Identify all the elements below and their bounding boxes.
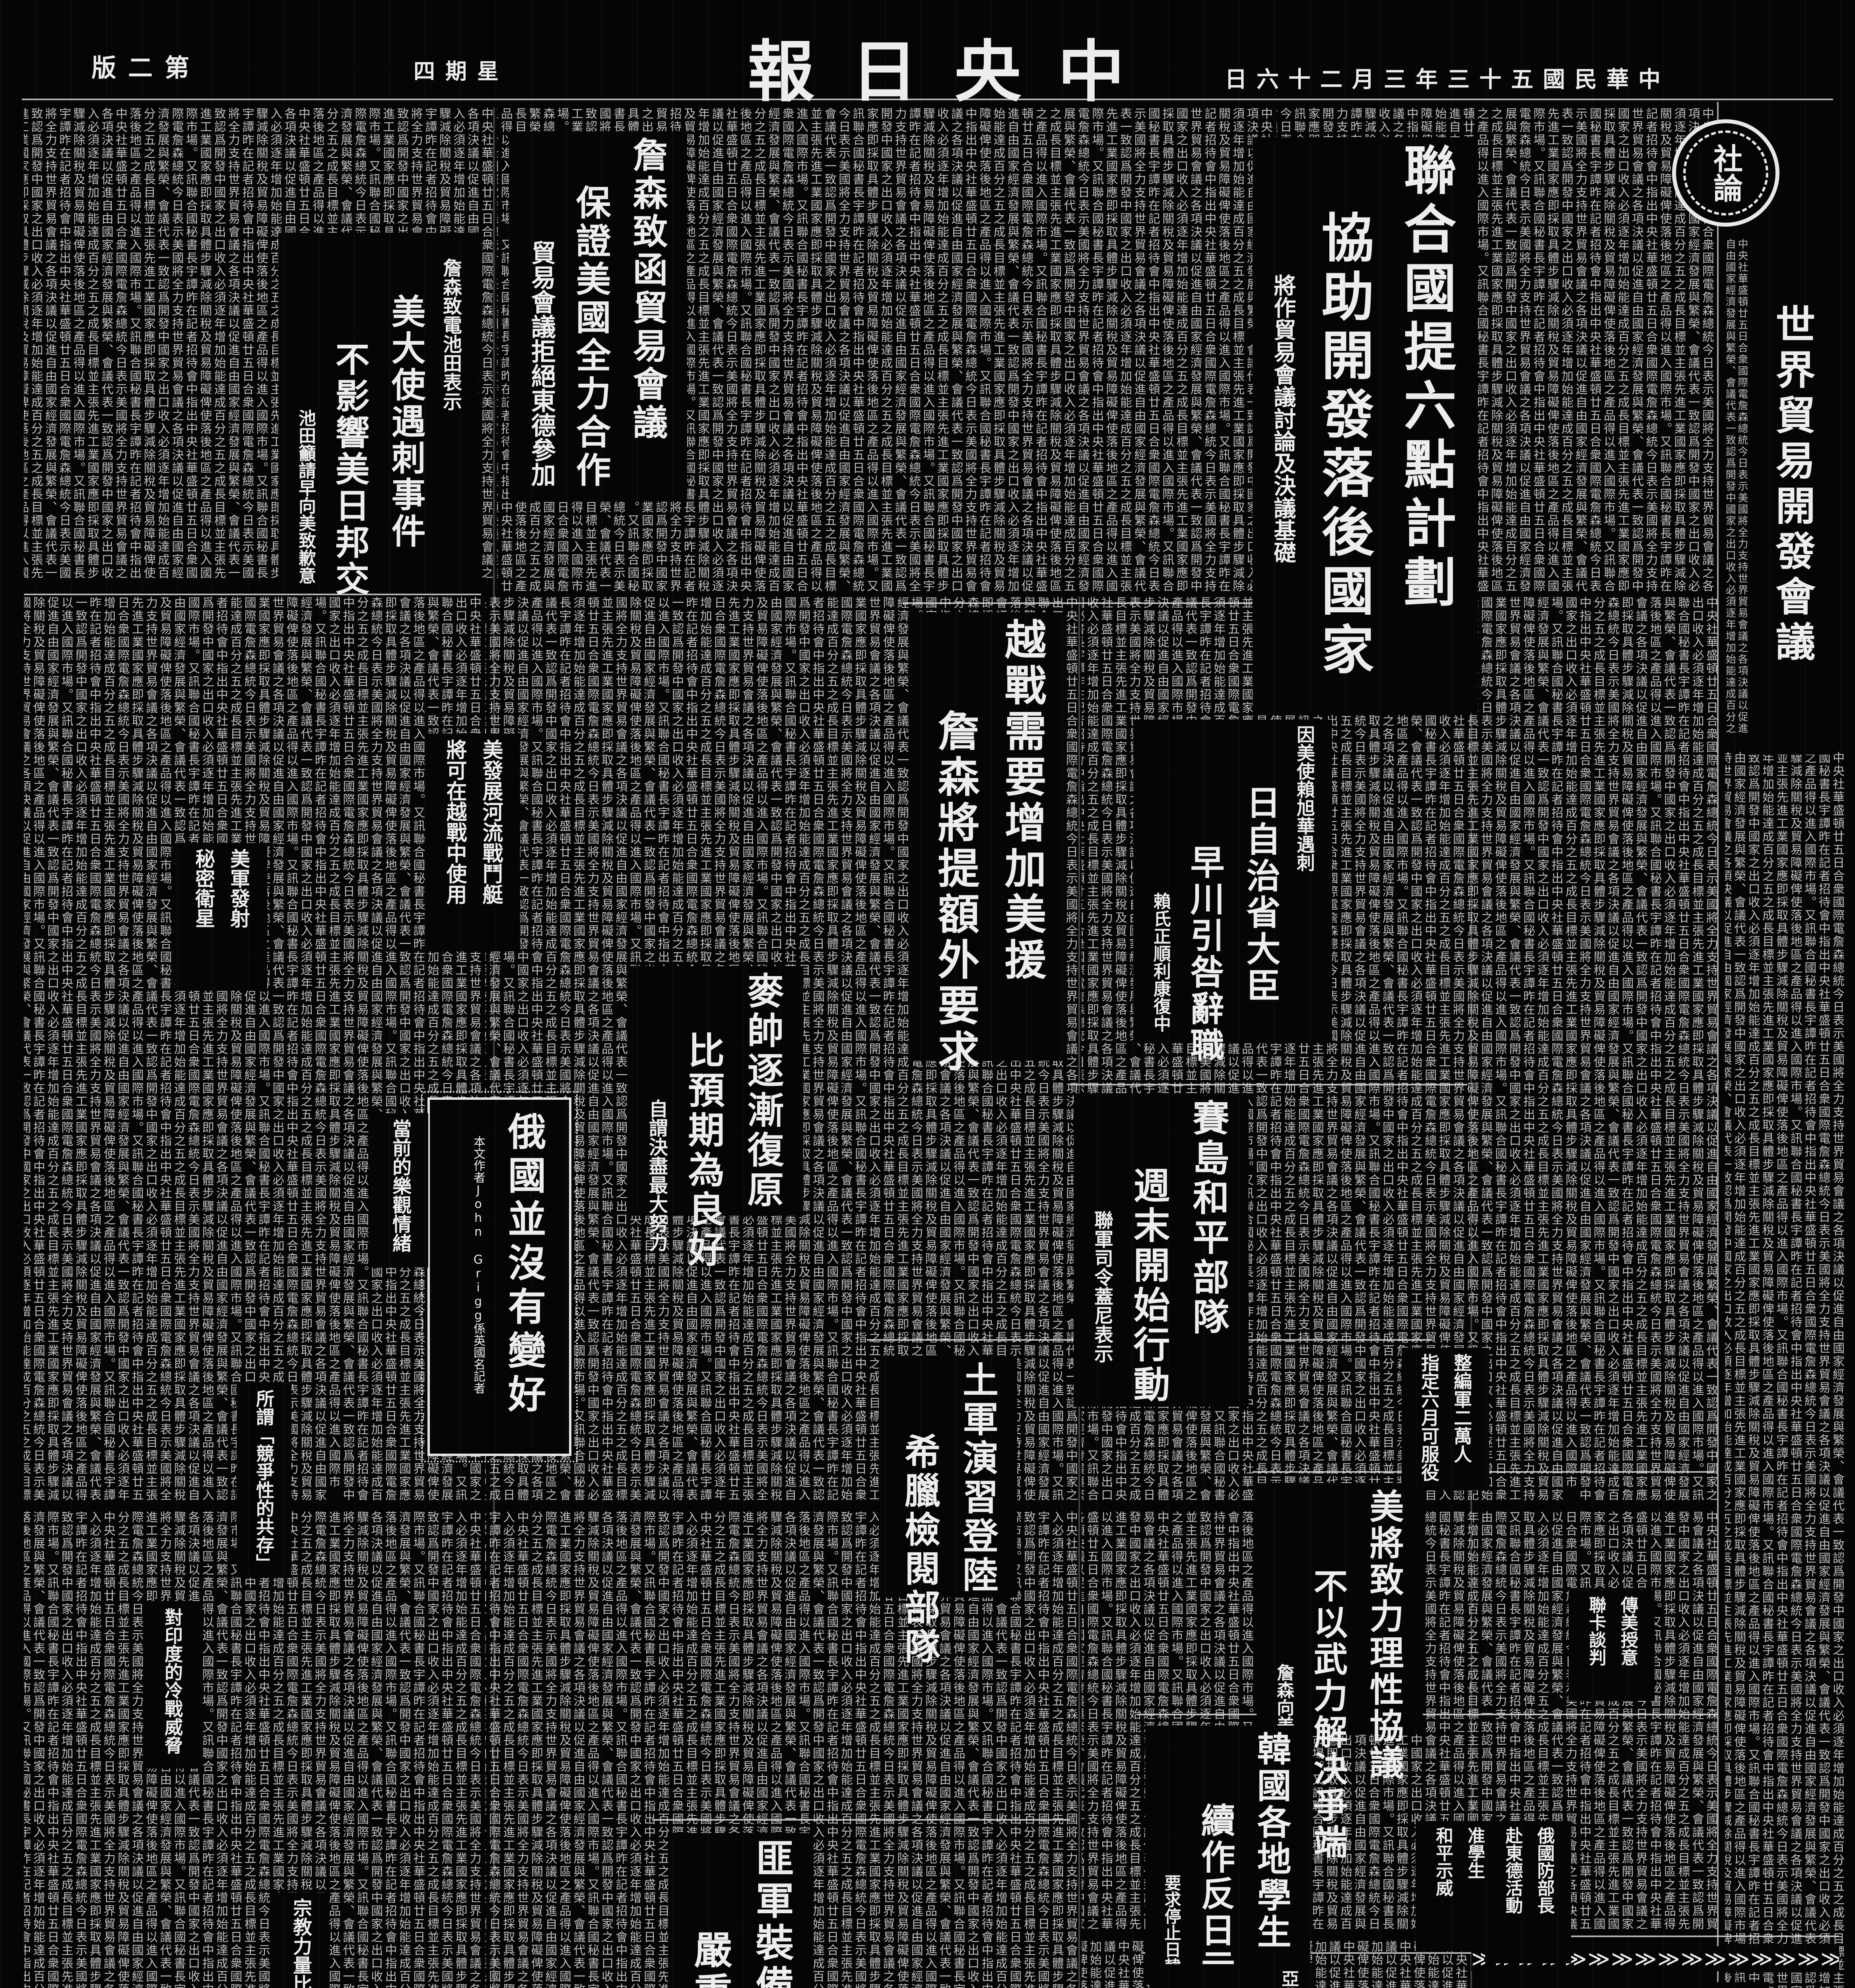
satellite-line2: 秘密衛星 [189,848,218,984]
cyprus-talks-line1: 傳美授意 [1615,1596,1640,1695]
article-cyprus-talks-headline: 傳美授意 聯卡談判 [1569,1590,1655,1701]
vietnam-line1: 越戰需要增加美援 [992,618,1052,1055]
korea-students-line2: 續作反日示威 [1190,1803,1240,1978]
hayakawa-line2: 早川引咎辭職 [1179,845,1229,1035]
article-macarthur-headline: 麥帥逐漸復原 比預期為良好 自謂決盡最大努力 [628,966,803,1216]
article-turkey-headline: 土軍演習登陸 希臘檢閱部隊 [879,1356,1017,1598]
cyprus-talks-line2: 聯卡談判 [1583,1596,1608,1695]
section-divider [24,594,481,595]
section-head-religion: 宗教力量比魔鬼大 [272,1893,329,1988]
article-hayakawa-headline: 因美使賴旭華遇刺 日自治省大臣 早川引咎辭職 賴氏正順利康復中 [1133,720,1332,1041]
section-head-india: 對印度的冷戰威脅 [145,1602,200,1769]
riverboat-line1: 美發展河流戰鬥艇 [476,739,506,946]
korea-demo-line2: 和平示威 [1430,1827,1455,1946]
editorial-body-text: 中央社華盛頓廿五日合衆國際電詹森總統今日表示美國將全力支持世界貿易會議之各項決議… [1725,751,1844,1988]
riverboat-line2: 將可在越戰中使用 [440,739,470,946]
section-divider [1070,1084,1467,1085]
editorial-badge-label: 社論 [1705,144,1747,202]
masthead-title: 報日央中 [748,18,1161,115]
russia-feature-byline: 本文作者John Grigg係英國名記者 [469,1136,487,1442]
johnson-letter-line2: 保證美國全力合作 [565,184,616,495]
ikeda-line2: 不影響美日邦交 [324,342,374,580]
article-albania-headline: 亞非會議烏煙瘴氣 俄匪不斷鬥法 已使阿國為難 [1149,1964,1315,1988]
un-plan-headline-line2: 協助開發落後國家 [1305,210,1381,707]
article-korea-demo-headline: 准學生 和平示威 [1416,1821,1501,1951]
section-head-optimism: 當前的樂觀情緒 [372,1113,428,1268]
macarthur-line2: 比預期為良好 [677,1031,730,1210]
weekday-label: 四期星 [414,54,509,85]
hayakawa-kicker: 因美使賴旭華遇刺 [1292,725,1318,1035]
cyprus-line1: 賽島和平部隊 [1181,1099,1234,1401]
un-plan-headline-line1: 聯合國提六點計劃 [1388,143,1464,707]
hayakawa-subheadline: 賴氏正順利康復中 [1148,892,1173,1035]
commie-army-line2: 嚴重缺乏 [682,1930,738,1988]
hayakawa-line1: 日自治省大臣 [1235,785,1285,1035]
russia-feature-title: 俄國並沒有變好 [496,1112,552,1442]
macarthur-line1: 麥帥逐漸復原 [736,972,789,1210]
macarthur-subheadline: 自謂決盡最大努力 [643,1099,670,1210]
article-ikeda-headline: 詹森致電池田表示 美大使遇刺事件 不影響美日邦交 池田籲請早向美致歉意 [278,233,479,586]
johnson-speech-subheadline: 詹森向美勞聯演說表示 [1271,1664,1296,1727]
ikeda-kicker: 詹森致電池田表示 [437,258,464,580]
section-head-optimism-text: 當前的樂觀情緒 [386,1119,414,1262]
commie-army-line1: 匪軍裝備 [744,1839,799,1988]
johnson-letter-line3: 貿易會議拒絕東德參加 [523,240,559,495]
article-johnson-speech-headline: 美將致力理性協議 不以武力解決爭端 詹森向美勞聯演說表示 [1257,1483,1423,1733]
body-text-block: 中央社華盛頓廿五日合衆國際電詹森總統今日表示美國將全力支持世界貿易會議之各項決議… [24,1511,481,1988]
turkey-line1: 土軍演習登陸 [951,1361,1003,1592]
johnson-letter-line1: 詹森致函貿易會議 [622,137,673,495]
editorial-intro-text: 中央社華盛頓廿五日合衆國際電詹森總統今日表示美國將全力支持世界貿易會議之各項決議… [1723,239,1748,736]
soviet-defmin-line1: 俄國防部長 [1531,1827,1557,1958]
vietnam-line2: 詹森將提額外要求 [925,709,985,1055]
editorial-headline: 世界貿易開發會議 [1749,298,1835,755]
section-divider [652,1819,1070,1821]
korea-students-subheadline: 要求停止日韓談判 [1160,1874,1184,1978]
article-vietnam-headline: 越戰需要增加美援 詹森將提額外要求 [911,612,1066,1061]
soviet-defmin-line2: 赴東德活動 [1500,1827,1525,1958]
korea-students-line1: 韓國各地學生 [1246,1731,1296,1978]
date-line: 日六十二月三年三十五國民華中 [1225,62,1670,94]
article-cyprus-headline: 賽島和平部隊 週末開始行動 聯軍司令蓋尼表示 [1074,1093,1249,1407]
section-head-india-text: 對印度的冷戰威脅 [159,1608,186,1763]
article-riverboat-headline: 美發展河流戰鬥艇 將可在越戰中使用 [425,734,520,951]
section-head-coexistence-text: 所謂「競爭性的共存」 [251,1389,277,1572]
article-satellite-headline: 美軍發射 秘密衛星 [175,843,267,989]
reorg-army-line2: 指定六月可服役 [1416,1353,1442,1485]
article-johnson-letter-headline: 詹森致函貿易會議 保證美國全力合作 貿易會議拒絕東德參加 [509,131,687,500]
body-text-block: 中央社華盛頓廿五日合衆國際電詹森總統今日表示美國將全力支持世界貿易會議之各項決議… [24,596,481,1511]
cyprus-subheadline: 聯軍司令蓋尼表示 [1088,1210,1116,1401]
article-russia-feature-box: 俄國並沒有變好 本文作者John Grigg係英國名記者 [427,1097,571,1456]
edition-label: 版二第 [91,48,201,83]
turkey-line2: 希臘檢閱部隊 [893,1433,945,1592]
reorg-army-line1: 整編軍二萬人 [1449,1353,1475,1485]
cyprus-line2: 週末開始行動 [1122,1167,1175,1401]
albania-kicker: 亞非會議烏煙瘴氣 [1276,1970,1301,1988]
section-head-religion-text: 宗教力量比魔鬼大 [287,1898,315,1988]
column-rule [493,107,495,1988]
article-korea-students-headline: 韓國各地學生 續作反日示威 要求停止日韓談判 [1145,1726,1310,1983]
editorial-column-rule [1717,102,1719,1988]
article-commie-army-headline: 匪軍裝備 嚴重缺乏 [668,1833,814,1988]
editorial-badge: 社論 [1672,119,1779,227]
korea-demo-line1: 准學生 [1462,1827,1487,1946]
article-un-plan-headline: 聯合國提六點計劃 協助開發落後國家 將作貿易會議討論及決議基礎 [1253,137,1478,713]
satellite-line1: 美軍發射 [224,848,253,984]
section-divider [1137,1714,1718,1715]
section-head-coexistence: 所謂「競爭性的共存」 [237,1384,291,1578]
ikeda-subheadline: 池田籲請早向美致歉意 [293,409,318,580]
ikeda-line1: 美大使遇刺事件 [381,294,430,580]
editorial-headline-text: 世界貿易開發會議 [1763,304,1821,749]
cancer-headline-line1: 斯維戴家學科女美 [1483,1982,1770,1988]
un-plan-subheadline: 將作貿易會議討論及決議基礎 [1267,274,1299,707]
johnson-speech-line2: 不以武力解決爭端 [1303,1568,1352,1727]
johnson-speech-line1: 美將致力理性協議 [1359,1489,1408,1727]
article-reorg-army-headline: 整編軍二萬人 指定六月可服役 [1402,1348,1489,1490]
newspaper-page: 版二第 四期星 報日央中 日六十二月三年三十五國民華中 社論 中央社華盛頓廿五日… [0,0,1855,1988]
